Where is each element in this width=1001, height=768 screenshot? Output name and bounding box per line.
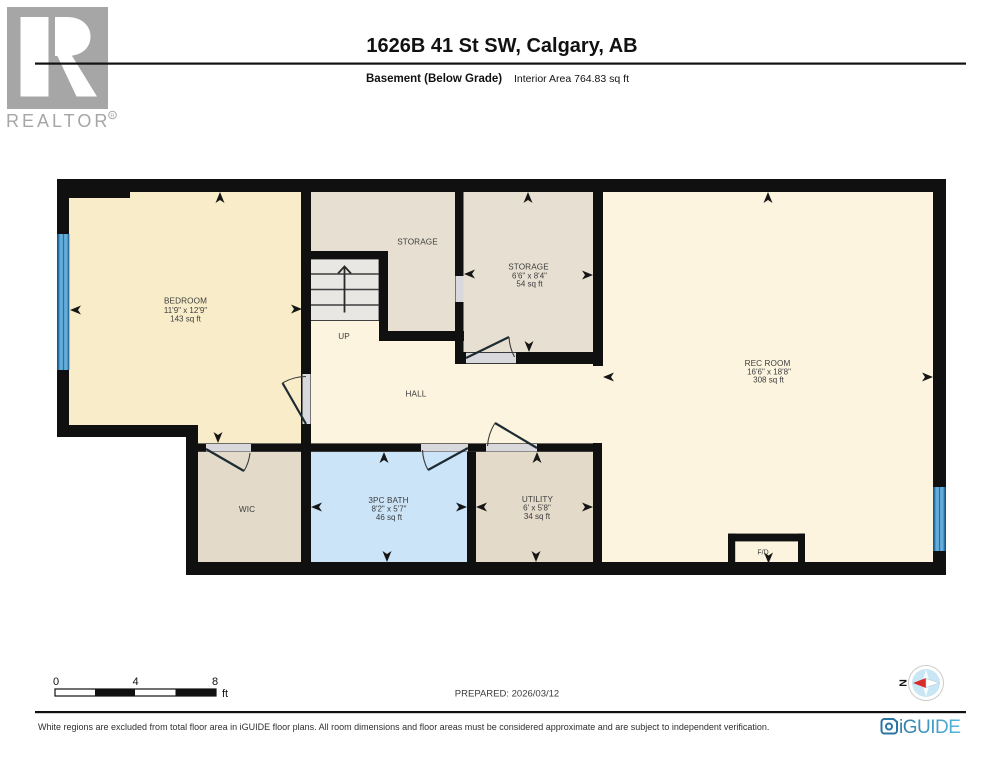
svg-text:UP: UP <box>338 332 350 341</box>
svg-text:54 sq ft: 54 sq ft <box>516 280 543 289</box>
svg-text:STORAGE: STORAGE <box>397 238 438 247</box>
svg-text:iGUIDE: iGUIDE <box>899 717 960 738</box>
svg-text:White regions are excluded fro: White regions are excluded from total fl… <box>38 722 769 732</box>
svg-text:BEDROOM: BEDROOM <box>164 297 207 306</box>
svg-text:HALL: HALL <box>406 390 427 399</box>
svg-text:Interior Area 764.83 sq ft: Interior Area 764.83 sq ft <box>514 73 629 85</box>
svg-text:F/D: F/D <box>757 550 768 557</box>
svg-text:N: N <box>898 679 910 687</box>
svg-text:34 sq ft: 34 sq ft <box>524 512 551 521</box>
svg-text:308 sq ft: 308 sq ft <box>753 376 784 385</box>
svg-text:46 sq ft: 46 sq ft <box>376 513 403 522</box>
svg-text:1626B 41 St SW, Calgary, AB: 1626B 41 St SW, Calgary, AB <box>366 35 637 57</box>
svg-text:REALTOR: REALTOR <box>6 111 110 131</box>
svg-text:4: 4 <box>132 676 138 688</box>
svg-text:STORAGE: STORAGE <box>508 263 549 272</box>
svg-text:R: R <box>111 113 115 119</box>
svg-text:ft: ft <box>222 688 228 700</box>
svg-text:PREPARED: 2026/03/12: PREPARED: 2026/03/12 <box>455 689 559 700</box>
svg-text:0: 0 <box>53 676 59 688</box>
svg-text:143 sq ft: 143 sq ft <box>170 315 201 324</box>
svg-text:Basement (Below Grade): Basement (Below Grade) <box>366 73 502 85</box>
svg-text:8: 8 <box>212 676 218 688</box>
svg-text:WIC: WIC <box>239 505 255 514</box>
